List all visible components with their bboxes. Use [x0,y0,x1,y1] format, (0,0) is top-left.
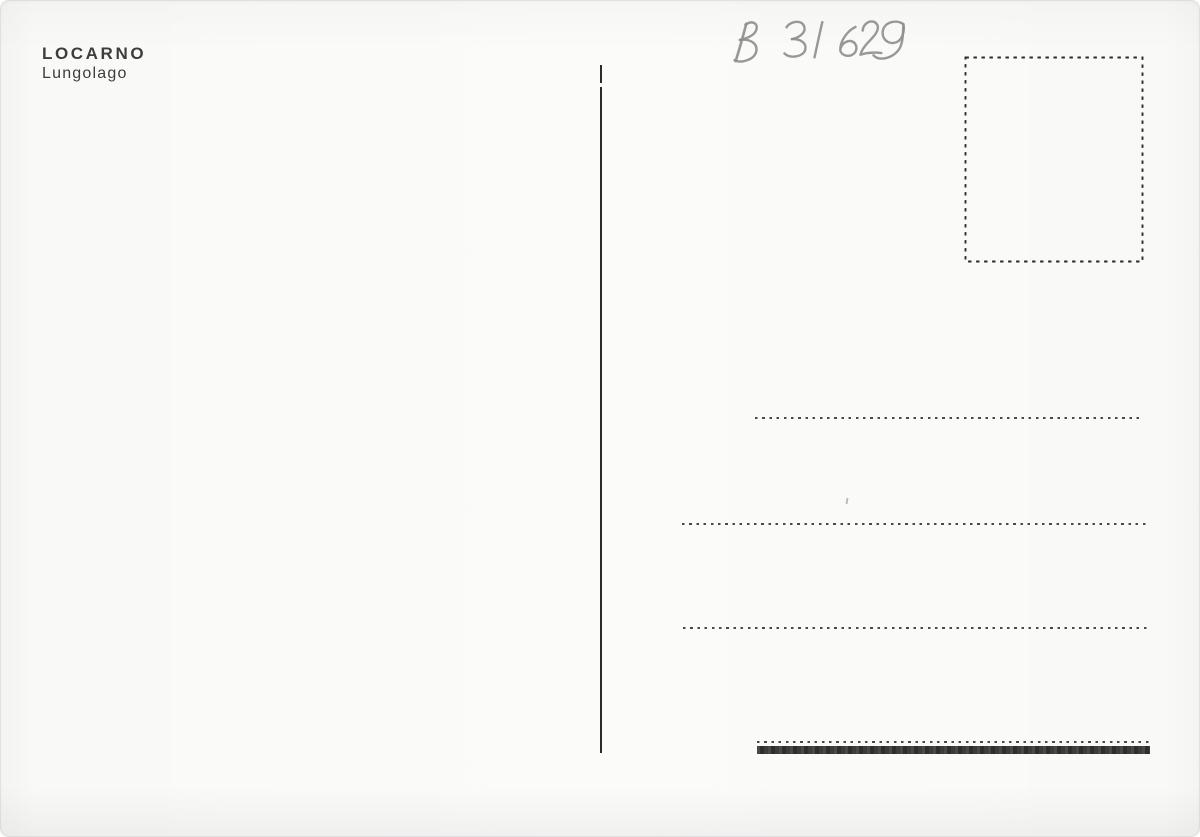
address-line-2 [682,523,1147,525]
handwritten-number [725,7,923,78]
address-line-1 [755,417,1143,419]
bottom-solid-bar [757,746,1150,754]
bottom-dotted-rule [757,741,1150,743]
center-divider-rule [600,65,602,753]
stamp-box [964,56,1144,263]
postcard-back: LOCARNO Lungolago [0,0,1200,837]
imprint-title: LOCARNO [42,44,146,63]
imprint: LOCARNO Lungolago [42,44,146,84]
paper-speck [846,498,849,504]
address-line-3 [683,627,1149,629]
imprint-subtitle: Lungolago [42,64,146,84]
